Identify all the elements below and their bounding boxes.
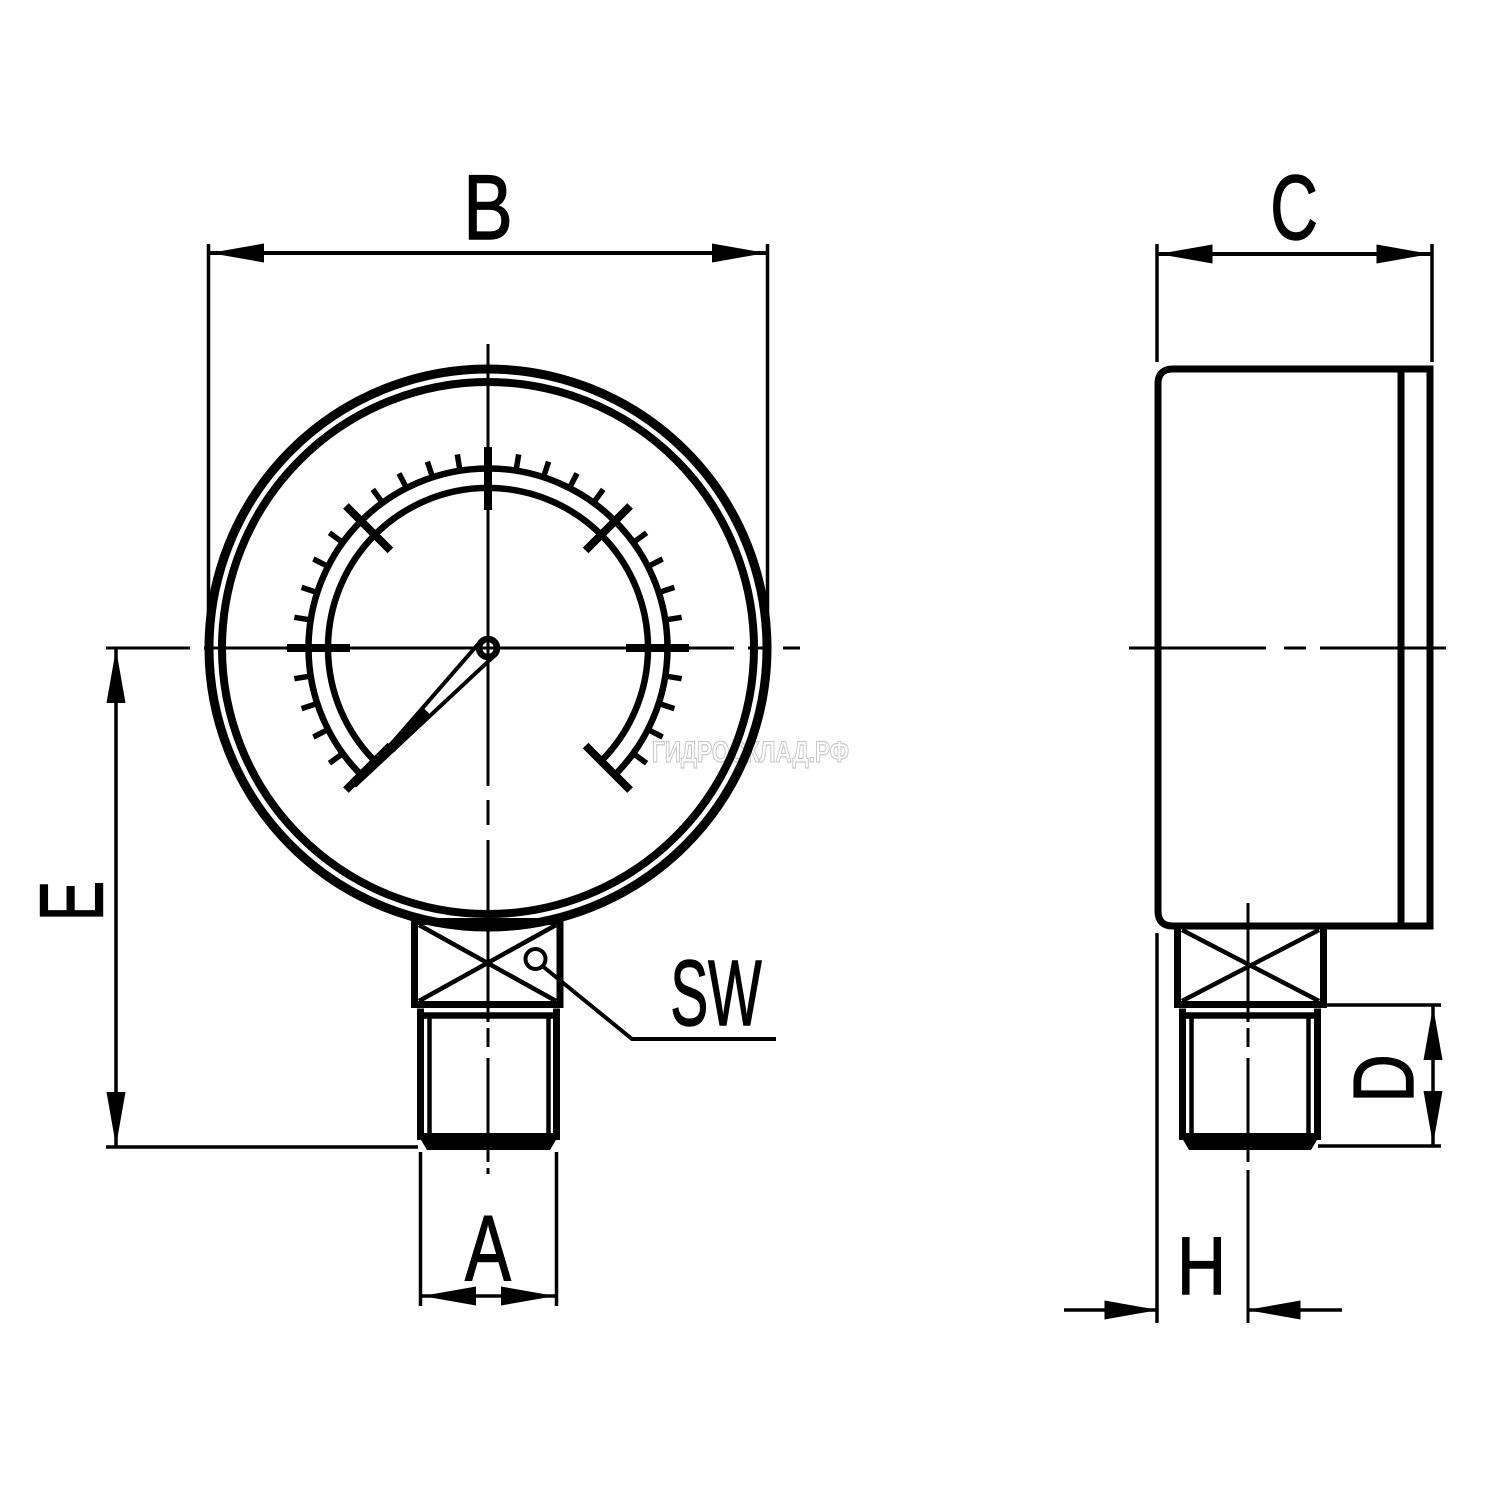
svg-text:A: A (465, 1197, 511, 1300)
svg-text:SW: SW (670, 942, 762, 1046)
svg-text:E: E (23, 881, 123, 921)
svg-text:B: B (463, 157, 512, 259)
svg-text:D: D (1336, 1054, 1432, 1102)
svg-text:C: C (1270, 156, 1318, 258)
svg-text:H: H (1177, 1220, 1226, 1311)
